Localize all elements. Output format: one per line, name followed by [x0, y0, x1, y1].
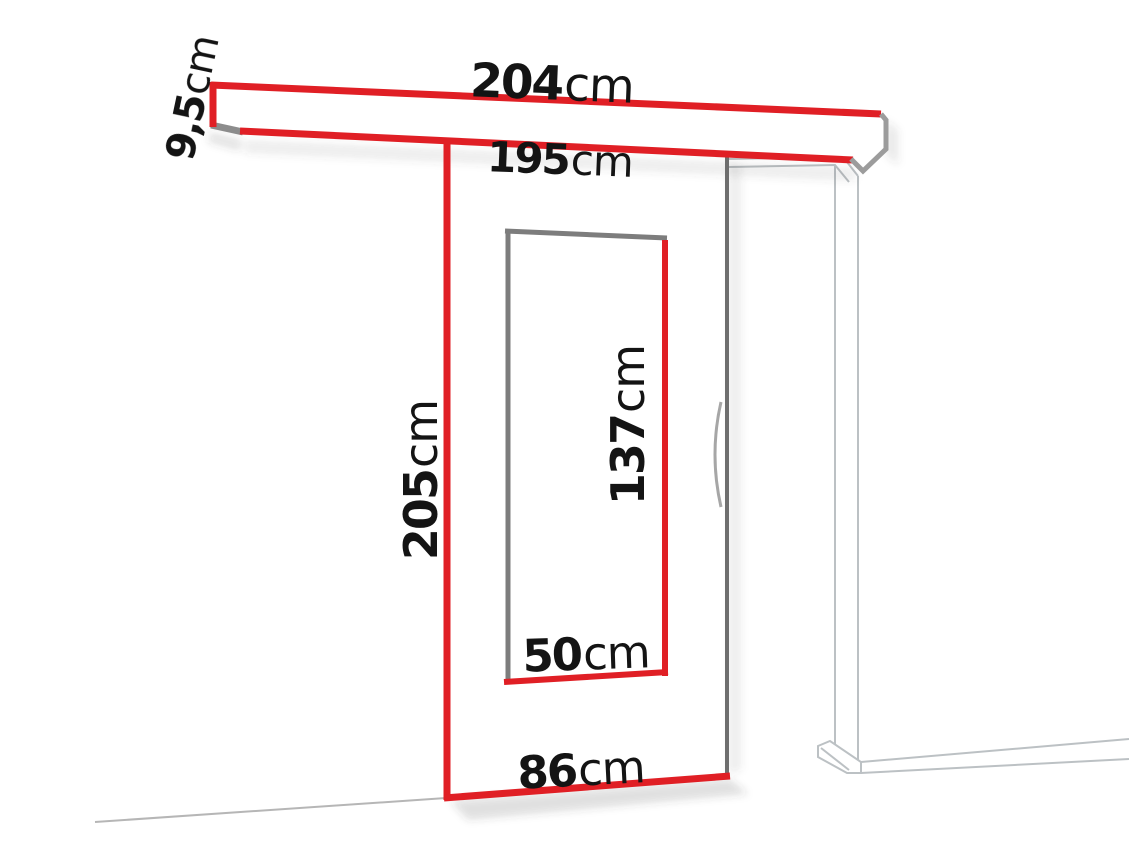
baseboard-bottom-edge — [861, 759, 1129, 773]
rail-length-value: 204 — [469, 53, 563, 112]
window-width-label: 50cm — [522, 629, 651, 678]
door-height-unit: cm — [394, 400, 448, 468]
door-width-label: 86cm — [516, 744, 645, 796]
rail-inner-length-value: 195 — [486, 132, 570, 184]
baseboard-top-edge — [861, 739, 1129, 762]
door-width-value: 86 — [516, 744, 577, 800]
window-height-unit: cm — [601, 345, 655, 413]
rail-length-label: 204cm — [469, 57, 634, 111]
rail-inner-length-unit: cm — [570, 135, 634, 186]
window-width-unit: cm — [582, 625, 650, 680]
door-panel — [447, 141, 727, 797]
wall-opening-frame — [729, 157, 1129, 773]
floor-line — [95, 798, 446, 822]
window-height-value: 137 — [601, 415, 655, 505]
door-side-shadow — [729, 162, 741, 774]
rail-length-unit: cm — [563, 57, 635, 115]
rail-inner-length-label: 195cm — [486, 136, 633, 184]
door-height-label: 205cm — [398, 400, 444, 560]
diagram-canvas: 204cm 9,5cm 195cm 205cm 137cm 50cm 86cm — [0, 0, 1129, 847]
door-height-value: 205 — [394, 470, 448, 560]
rail-left-end-shadow — [208, 132, 242, 151]
door-width-unit: cm — [577, 740, 646, 796]
baseboard-end-cap — [818, 741, 861, 773]
window-height-label: 137cm — [605, 345, 651, 505]
window-width-value: 50 — [522, 628, 582, 683]
